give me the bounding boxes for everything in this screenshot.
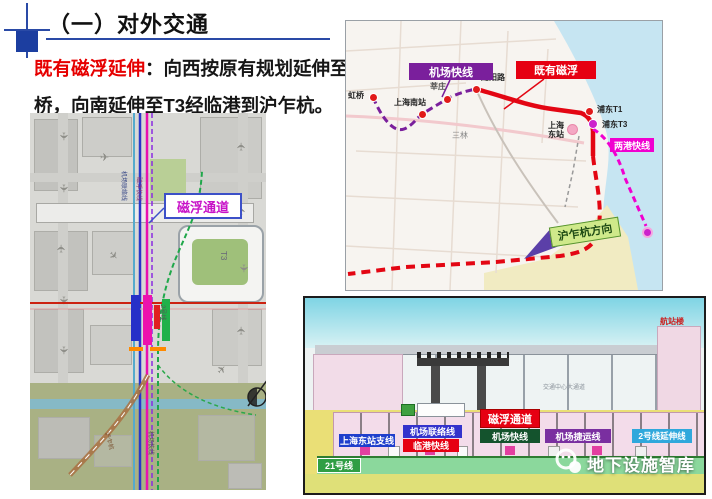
station-label-pudong-t3: 浦东T3 [602,120,627,129]
watermark-text: 地下设施智库 [587,451,695,476]
badge-maglev-corridor: 磁浮通道 [480,409,540,428]
truss-equipment-row [417,352,509,358]
station-label-south-station: 上海南站 [394,98,426,107]
badge-east-station-branch: 上海东站支线 [339,434,395,447]
badge-line2-extension: 2号线延伸线 [632,429,692,443]
badge-airport-express: 机场快线 [480,429,540,443]
station-dot-east-station [567,124,578,135]
train-block [360,446,370,455]
platform-bar-blue [131,295,140,341]
regional-route-map: 虹桥 上海南站 莘庄 龙阳路 浦东T1 浦东T3 上海东站 三林 机场快线 既有… [345,20,663,291]
badge-airport-express: 机场快线 [409,63,493,80]
badge-lianggang-express: 两港快线 [610,138,654,152]
wechat-logo-icon [553,446,585,478]
station-dot-pudong-t1 [585,107,594,116]
terminal-building-right [657,326,701,418]
line-label-maglev-express: 磁浮快线 [135,177,144,201]
slide-canvas: （一）对外交通 既有磁浮延伸：向西按原有规划延伸至虹桥，向南延伸至T3经临港到沪… [0,0,712,499]
t3-label: T3 [219,251,228,260]
station-label-hongqiao: 虹桥 [348,91,364,100]
badge-lingang-express: 临港快线 [403,439,459,452]
construction-truss [417,358,509,366]
station-label-pudong-t1: 浦东T1 [597,105,622,114]
lead-highlight: 既有磁浮延伸 [34,58,145,79]
station-dot-pudong-t3 [588,119,598,129]
line-label-airport-link: 机场联络线 [120,171,129,201]
line-label-airport-express: 机场快线 [147,431,156,455]
concourse-note: 交通中心大通道 [543,382,585,391]
line-label-line2: 2号线 [159,305,168,320]
small-green-box [401,404,415,416]
station-dot-south-station [418,110,427,119]
train-block [505,446,515,455]
station-dot-xinzhuang [443,95,452,104]
area-label-sanlin: 三林 [452,131,468,140]
bullet-square [16,31,38,52]
badge-airport-apm: 机场捷运线 [545,429,611,443]
sky [305,298,704,348]
terminal-building-left [313,354,403,418]
small-white-box [417,403,465,417]
page-title: （一）对外交通 [48,7,209,39]
watermark: 地下设施智库 [553,446,703,478]
platform-tick-orange [129,347,143,351]
badge-airport-link: 机场联络线 [403,425,462,438]
north-arrow-icon [244,375,266,411]
station-dot-hongqiao [369,93,378,102]
badge-existing-maglev: 既有磁浮 [516,61,596,79]
platform-tick-orange [150,347,166,351]
title-underline [46,38,330,40]
station-label-east-station: 上海东站 [546,121,566,139]
terminal-label: 航站楼 [660,316,684,327]
station-dot-longyang [472,85,481,94]
cross-section-diagram: 航站楼 交通中心大通道 21号线 上海东站支线 机场联络线 临港快线 磁浮通道 … [303,296,706,495]
station-label-xinzhuang: 莘庄 [430,82,446,91]
maglev-corridor-badge: 磁浮通道 [164,193,242,219]
airport-plan-map: ✈ ✈ ✈ ✈ ✈ ✈ ✈ ✈ ✈ ✈ ✈ ✈ [30,113,266,490]
platform-bar-magenta [143,295,152,345]
station-dot-lingang-terminal [642,227,653,238]
badge-line21: 21号线 [317,458,361,473]
region-basemap [346,21,662,290]
